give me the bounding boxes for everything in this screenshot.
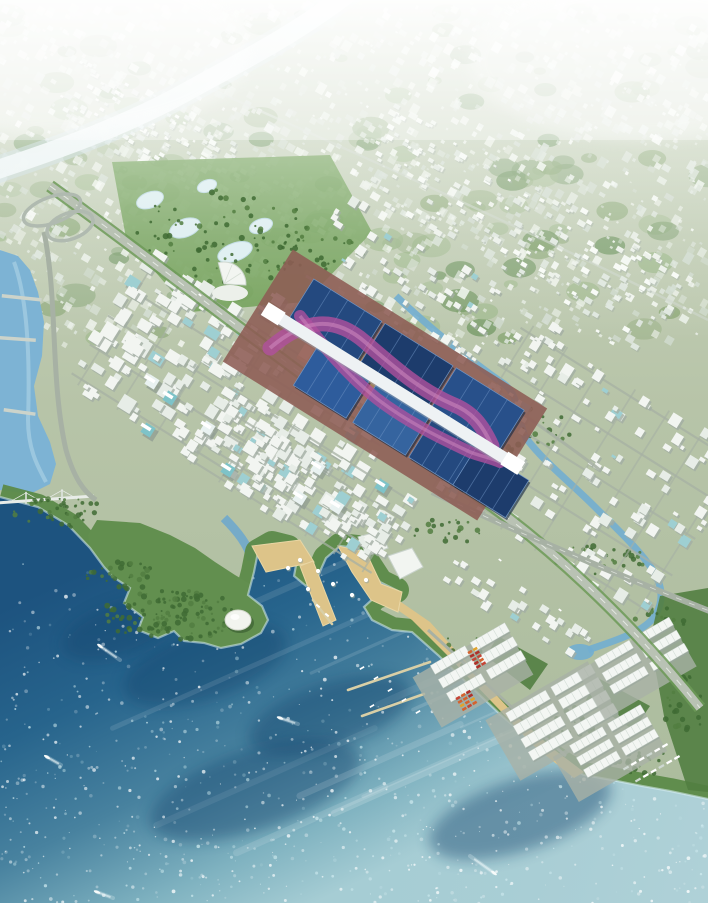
render-canvas (0, 0, 708, 903)
aerial-city-render (0, 0, 708, 903)
